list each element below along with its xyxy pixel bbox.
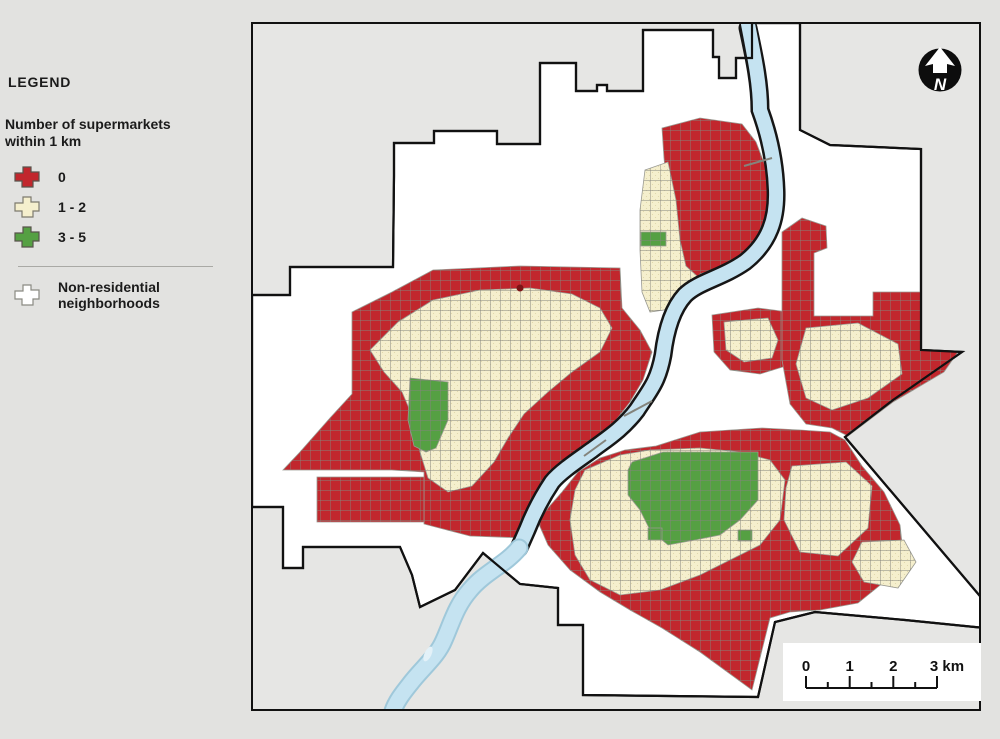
map-panel: N 0 1 2 3 km — [251, 22, 981, 711]
legend: LEGEND Number of supermarkets within 1 k… — [0, 60, 240, 316]
legend-subtitle: Number of supermarkets within 1 km — [5, 116, 240, 150]
legend-subtitle-line2: within 1 km — [5, 133, 81, 149]
point-marker — [517, 285, 524, 292]
page: { "legend": { "title": "LEGEND", "subtit… — [0, 0, 1000, 739]
nonres-line2: neighborhoods — [58, 295, 160, 311]
city-map: N 0 1 2 3 km — [251, 22, 981, 711]
legend-item-three-five-label: 3 - 5 — [58, 229, 86, 245]
scale-label-1: 1 — [846, 658, 854, 675]
swatch-three-five-icon — [10, 225, 44, 249]
north-arrow-label: N — [934, 75, 947, 94]
legend-title: LEGEND — [8, 74, 240, 90]
legend-item-nonresidential-label: Non-residential neighborhoods — [58, 279, 160, 313]
scale-bar: 0 1 2 3 km — [783, 643, 981, 701]
legend-item-one-two: 1 - 2 — [10, 194, 240, 220]
legend-subtitle-line1: Number of supermarkets — [5, 116, 171, 132]
swatch-one-two-icon — [10, 195, 44, 219]
nonres-line1: Non-residential — [58, 279, 160, 295]
legend-item-zero-label: 0 — [58, 169, 66, 185]
scale-label-0: 0 — [802, 658, 810, 675]
legend-item-three-five: 3 - 5 — [10, 224, 240, 250]
legend-item-one-two-label: 1 - 2 — [58, 199, 86, 215]
scale-label-3km: 3 km — [930, 658, 964, 675]
swatch-zero-icon — [10, 165, 44, 189]
legend-divider — [18, 266, 213, 267]
legend-item-nonresidential: Non-residential neighborhoods — [10, 279, 240, 313]
legend-item-zero: 0 — [10, 164, 240, 190]
scale-label-2: 2 — [889, 658, 897, 675]
nonresidential-enclave — [816, 254, 871, 314]
swatch-nonresidential-icon — [10, 283, 44, 307]
